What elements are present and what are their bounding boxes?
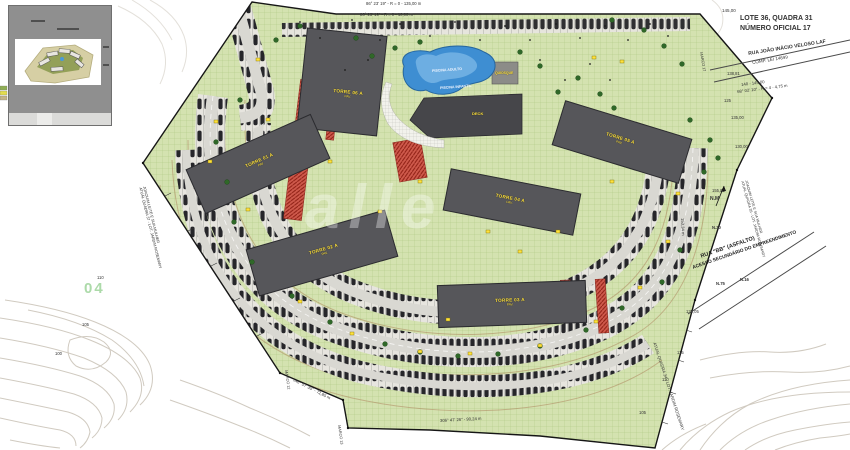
elevation-115-right: 115 — [677, 351, 684, 356]
north-label: N.M — [710, 197, 719, 203]
elevation-110-right: 110 — [662, 378, 669, 383]
lot-title-line1: LOTE 36, QUADRA 31 — [740, 15, 812, 23]
page-number: 04 — [84, 280, 105, 297]
elevation-110-left: 110 — [97, 276, 104, 281]
elevation-105-right: 105 — [639, 411, 646, 416]
elevation-130: 130,00 — [735, 145, 748, 150]
inset-annotation-mark — [31, 20, 45, 22]
bearing-top-2: 86° 23' 19" - R = 0 - 10,00 m — [360, 13, 413, 18]
elevation-13505: 135,05 — [686, 310, 699, 315]
deck-label: DECK — [472, 111, 483, 116]
survey-n16: N.16 — [740, 278, 749, 283]
edge-color-chips — [0, 86, 7, 100]
inset-annotation-mark — [103, 64, 109, 66]
inset-bottom-bar — [9, 113, 111, 125]
survey-n30: N.30 — [712, 226, 721, 231]
inset-annotation-mark — [103, 46, 109, 48]
elevation-100: 100 — [55, 352, 62, 357]
inset-bottom-chip — [37, 113, 52, 125]
site-plan-page: alle 04 LOTE 36, QUADRA 31 NÚMERO OFICIA… — [0, 0, 850, 450]
site-plan-canvas — [0, 0, 850, 450]
inset-3d-render — [15, 39, 101, 85]
bearing-right-length: 153,34 m — [679, 218, 685, 236]
elevation-125: 125 — [724, 99, 731, 104]
bearing-top-1: 86° 23' 19" - R = 0 - 135,00 m — [366, 2, 421, 7]
elevation-155: 155,00 — [712, 189, 725, 194]
inset-annotation-mark — [57, 28, 79, 30]
elevation-145: 145,00 — [722, 9, 736, 14]
elevation-105-left: 105 — [82, 323, 89, 328]
elevation-135: 135,00 — [731, 116, 744, 121]
kiosk-label: QUIOSQUE — [495, 71, 513, 75]
lot-title-line2: NÚMERO OFICIAL 17 — [740, 25, 811, 33]
survey-n75: N.75 — [716, 282, 725, 287]
tower-label-03: TORRE 03 A PAV. — [495, 297, 525, 307]
3d-overview-thumbnail[interactable] — [8, 5, 112, 126]
elevation-138: 138,81 — [727, 72, 740, 77]
